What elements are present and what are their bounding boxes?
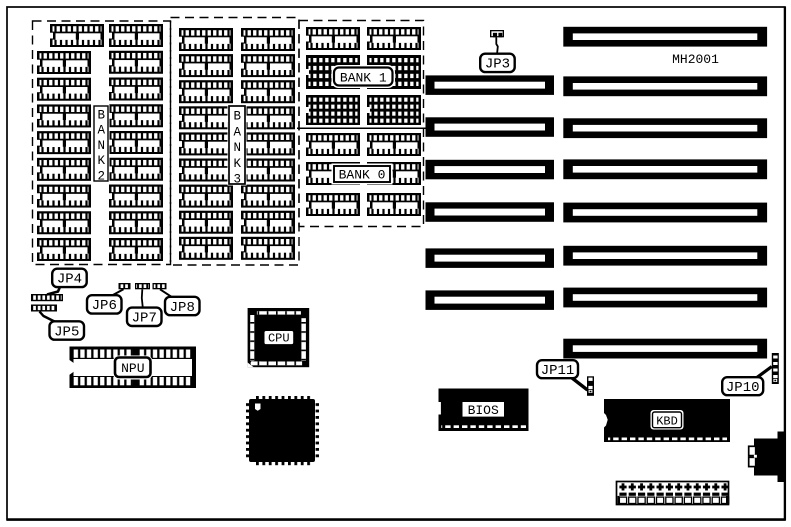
svg-text:BANK 0: BANK 0 [339, 168, 386, 183]
svg-text:B: B [233, 110, 241, 124]
svg-text:CPU: CPU [268, 332, 290, 346]
svg-text:A: A [97, 124, 105, 138]
svg-text:JP8: JP8 [170, 300, 195, 316]
svg-text:K: K [233, 157, 241, 171]
svg-text:MH2001: MH2001 [672, 52, 719, 67]
svg-text:2: 2 [97, 169, 105, 183]
svg-text:JP5: JP5 [54, 324, 79, 340]
svg-text:NPU: NPU [121, 361, 144, 376]
svg-text:A: A [233, 125, 241, 139]
svg-text:JP7: JP7 [132, 311, 157, 327]
svg-text:N: N [233, 141, 241, 155]
svg-text:3: 3 [233, 173, 241, 187]
svg-text:N: N [97, 139, 105, 153]
svg-text:K: K [97, 154, 105, 168]
svg-text:KBD: KBD [656, 414, 678, 428]
svg-text:BANK 1: BANK 1 [340, 70, 387, 85]
svg-text:JP11: JP11 [541, 363, 575, 379]
svg-text:B: B [97, 109, 105, 123]
svg-text:JP10: JP10 [726, 380, 760, 396]
svg-text:JP6: JP6 [92, 298, 117, 314]
svg-text:JP3: JP3 [485, 57, 510, 73]
svg-text:BIOS: BIOS [468, 403, 499, 418]
svg-text:JP4: JP4 [57, 272, 82, 288]
